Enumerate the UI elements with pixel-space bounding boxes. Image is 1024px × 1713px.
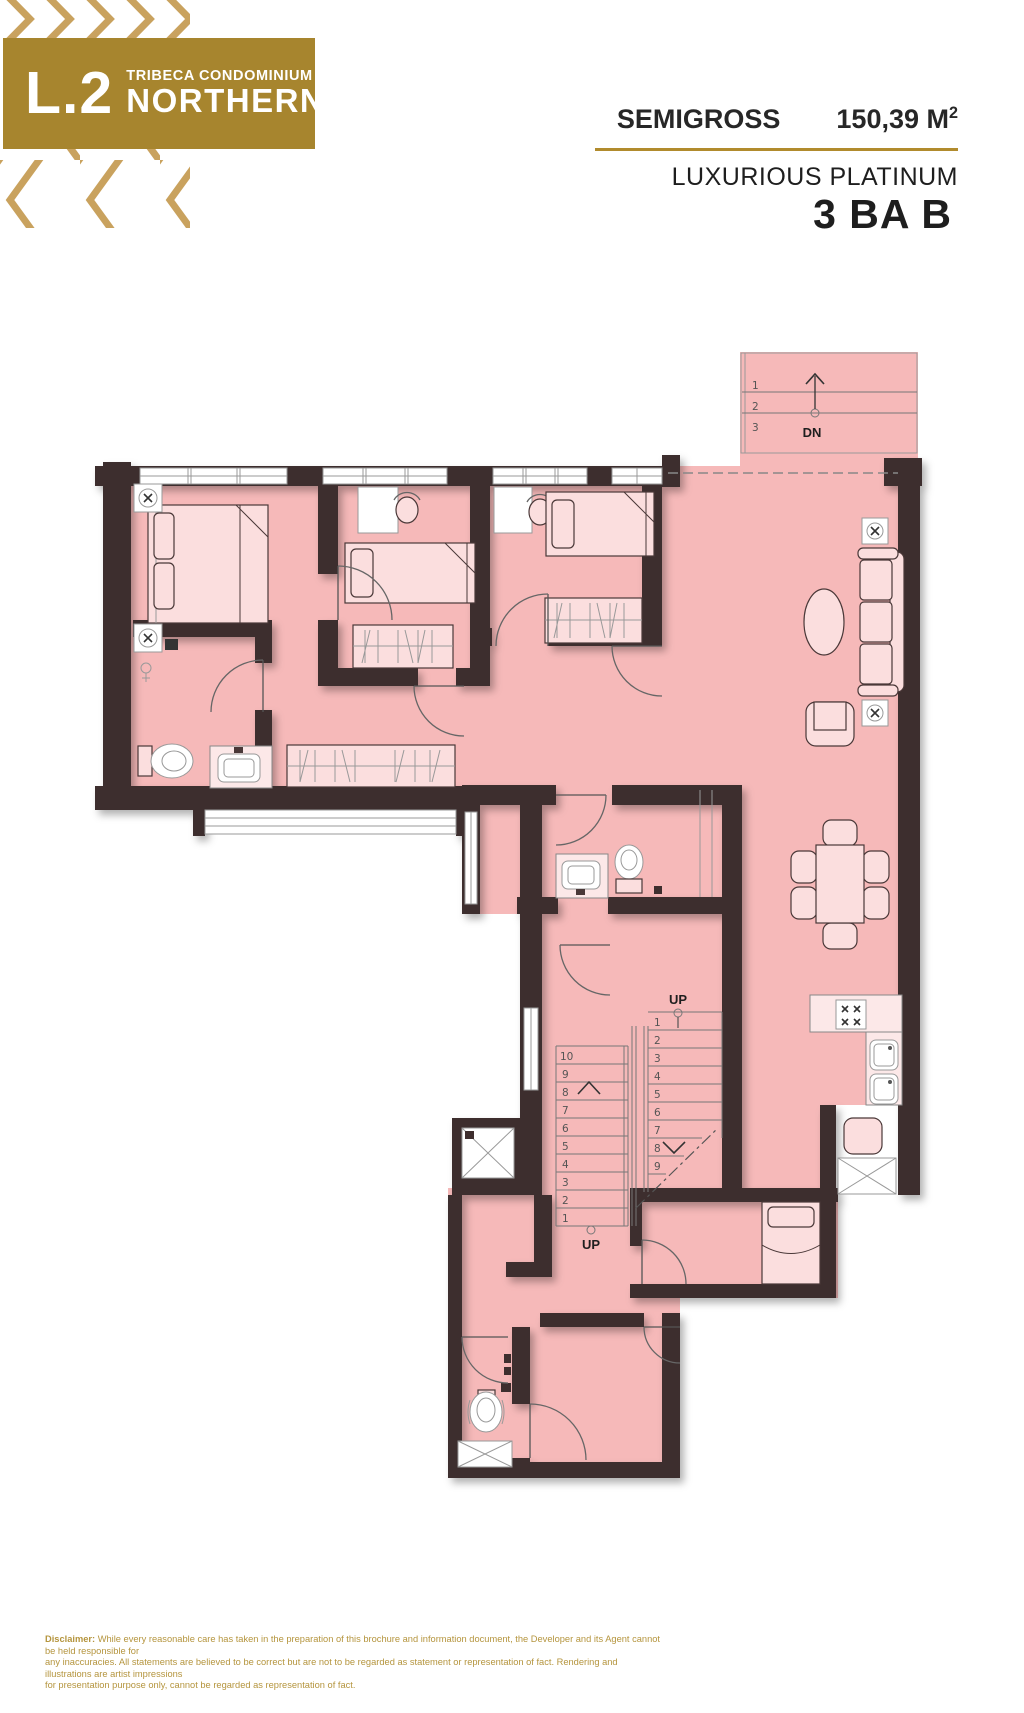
- collection-name: LUXURIOUS PLATINUM: [672, 163, 958, 192]
- toilet: [615, 845, 643, 893]
- water-heater: [844, 1118, 882, 1154]
- floor-lamp: [862, 518, 888, 544]
- svg-text:3: 3: [654, 1053, 661, 1065]
- shaft: [462, 1128, 514, 1178]
- chevron-pattern-bottom: [0, 149, 190, 228]
- svg-text:7: 7: [562, 1105, 569, 1117]
- svg-text:9: 9: [562, 1069, 569, 1081]
- level-badge: L.2 TRIBECA CONDOMINIUM NORTHERN: [3, 38, 315, 149]
- svg-text:8: 8: [654, 1143, 661, 1155]
- chevron-pattern-top: [0, 0, 190, 38]
- up-label-lower: UP: [582, 1237, 600, 1252]
- corridor-wardrobe: [287, 745, 455, 787]
- svg-text:6: 6: [654, 1107, 661, 1119]
- floor-lamp: [862, 700, 888, 726]
- svg-text:1: 1: [654, 1017, 661, 1029]
- entry-step-3: 3: [752, 422, 759, 434]
- level-number: L.2: [25, 64, 113, 123]
- disclaimer-line-3: for presentation purpose only, cannot be…: [45, 1680, 665, 1692]
- armchair: [806, 702, 854, 746]
- disclaimer-line-2: any inaccuracies. All statements are bel…: [45, 1657, 665, 1680]
- dining-chair: [791, 887, 817, 919]
- tower-name: NORTHERN: [126, 84, 325, 119]
- unit-type: 3 BA B: [813, 191, 952, 238]
- toilet: [138, 744, 193, 778]
- floor-plan: 1 2 3 DN: [0, 0, 1024, 1713]
- svg-text:1: 1: [562, 1213, 569, 1225]
- coffee-table: [804, 589, 844, 655]
- svg-text:2: 2: [654, 1035, 661, 1047]
- svg-text:7: 7: [654, 1125, 661, 1137]
- svg-text:5: 5: [654, 1089, 661, 1101]
- hatched-ledge: [838, 1158, 896, 1194]
- dining-chair: [863, 887, 889, 919]
- stove: [836, 1000, 866, 1029]
- vanity-sink: [556, 854, 608, 898]
- svg-text:2: 2: [562, 1195, 569, 1207]
- area-value: 150,39 M2: [836, 104, 958, 135]
- svg-text:5: 5: [562, 1141, 569, 1153]
- wardrobe: [353, 625, 453, 668]
- down-label: DN: [803, 425, 822, 440]
- brochure-page: 1 2 3 DN: [0, 0, 1024, 1713]
- dining-chair: [823, 820, 857, 846]
- maid-room: [762, 1202, 820, 1284]
- svg-text:4: 4: [562, 1159, 569, 1171]
- sofa: [858, 548, 904, 696]
- svg-text:3: 3: [562, 1177, 569, 1189]
- shower-head-icon: [165, 639, 178, 650]
- hatched-shaft: [458, 1441, 512, 1467]
- vanity-sink: [210, 746, 272, 788]
- gold-divider: [595, 148, 958, 151]
- dining-chair: [823, 923, 857, 949]
- svg-text:9: 9: [654, 1161, 661, 1173]
- dining-chair: [863, 851, 889, 883]
- nightstand-lamp: [134, 484, 162, 512]
- entry-step-2: 2: [752, 401, 759, 413]
- disclaimer-line-1: Disclaimer: While every reasonable care …: [45, 1634, 665, 1657]
- wardrobe: [545, 598, 642, 643]
- dining-table: [816, 845, 864, 923]
- disclaimer: Disclaimer: While every reasonable care …: [45, 1634, 665, 1692]
- area-label: SEMIGROSS: [617, 104, 781, 135]
- svg-text:8: 8: [562, 1087, 569, 1099]
- nightstand-lamp: [134, 624, 162, 652]
- up-label-main: UP: [669, 992, 687, 1007]
- svg-text:10: 10: [560, 1051, 573, 1063]
- svg-text:6: 6: [562, 1123, 569, 1135]
- dining-chair: [791, 851, 817, 883]
- area-row: SEMIGROSS 150,39 M2: [617, 104, 958, 135]
- entry-step-1: 1: [752, 380, 759, 392]
- svg-text:4: 4: [654, 1071, 661, 1083]
